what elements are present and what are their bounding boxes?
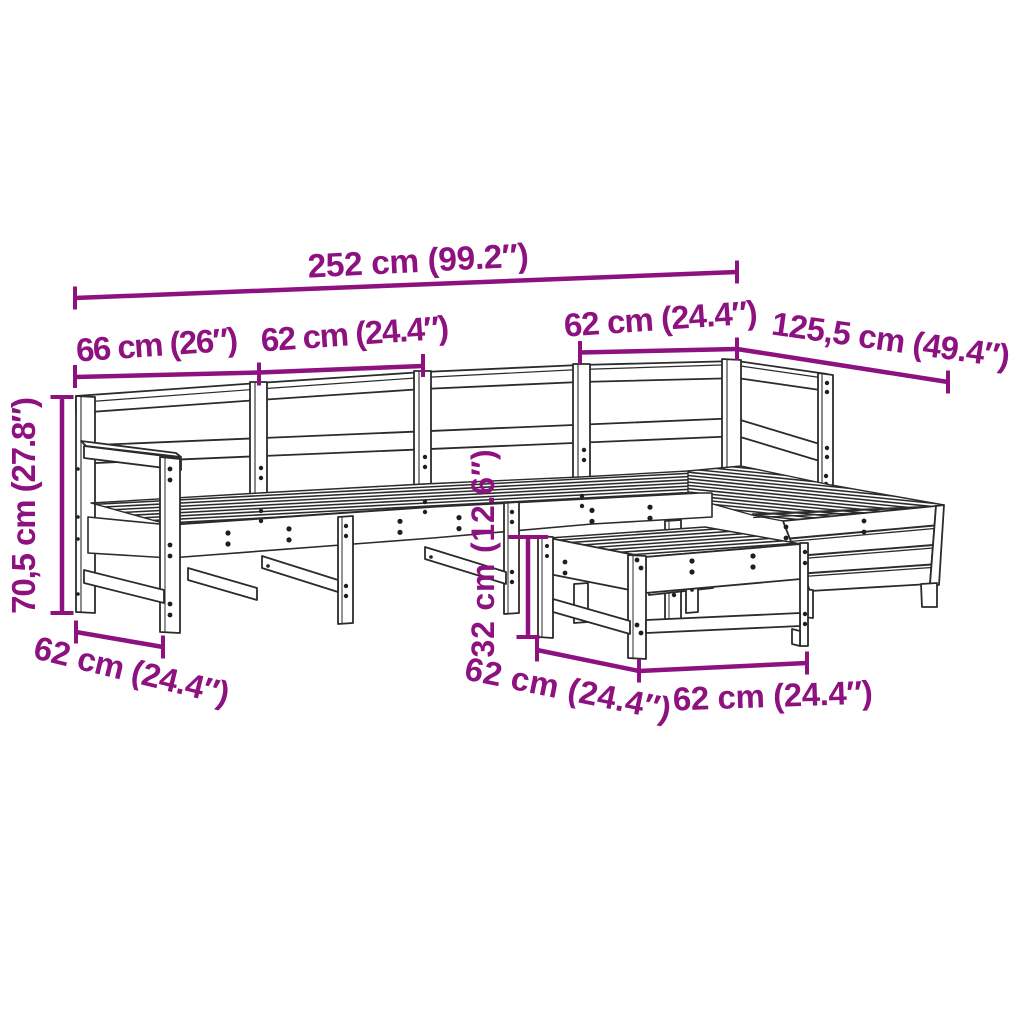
svg-text:62 cm (24.4″): 62 cm (24.4″) [672, 674, 873, 718]
svg-text:32 cm (12.6″): 32 cm (12.6″) [465, 449, 501, 658]
svg-text:70,5 cm (27.8″): 70,5 cm (27.8″) [5, 398, 42, 614]
